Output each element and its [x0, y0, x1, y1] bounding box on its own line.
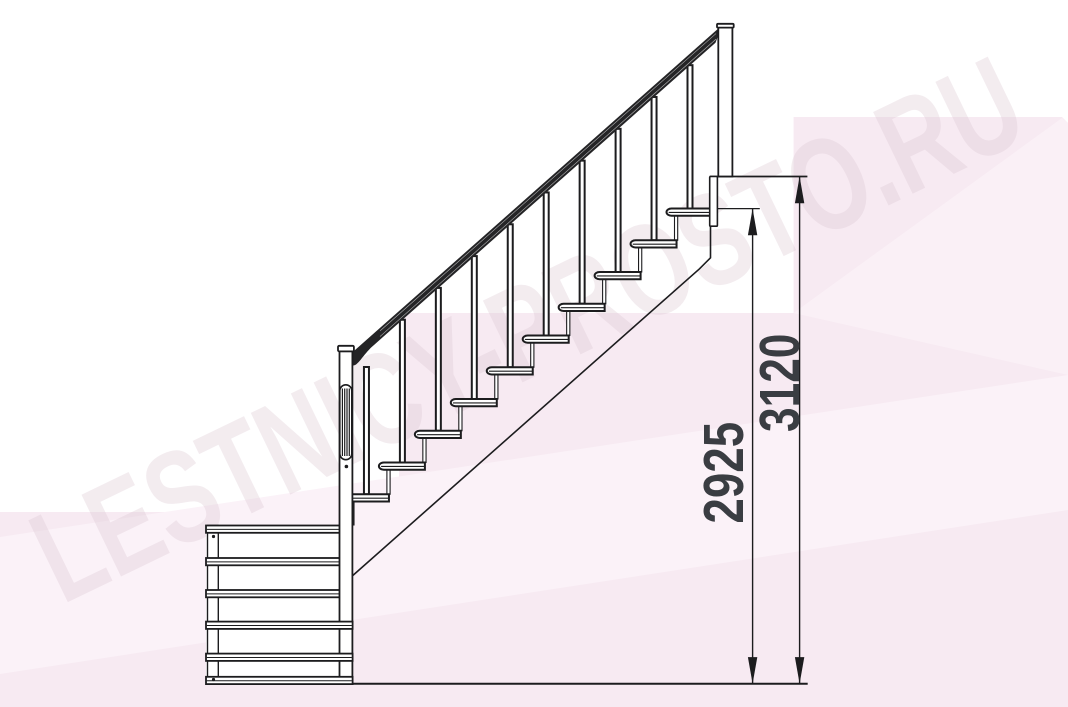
svg-text:3120: 3120 — [748, 334, 812, 432]
svg-text:2925: 2925 — [692, 422, 756, 524]
